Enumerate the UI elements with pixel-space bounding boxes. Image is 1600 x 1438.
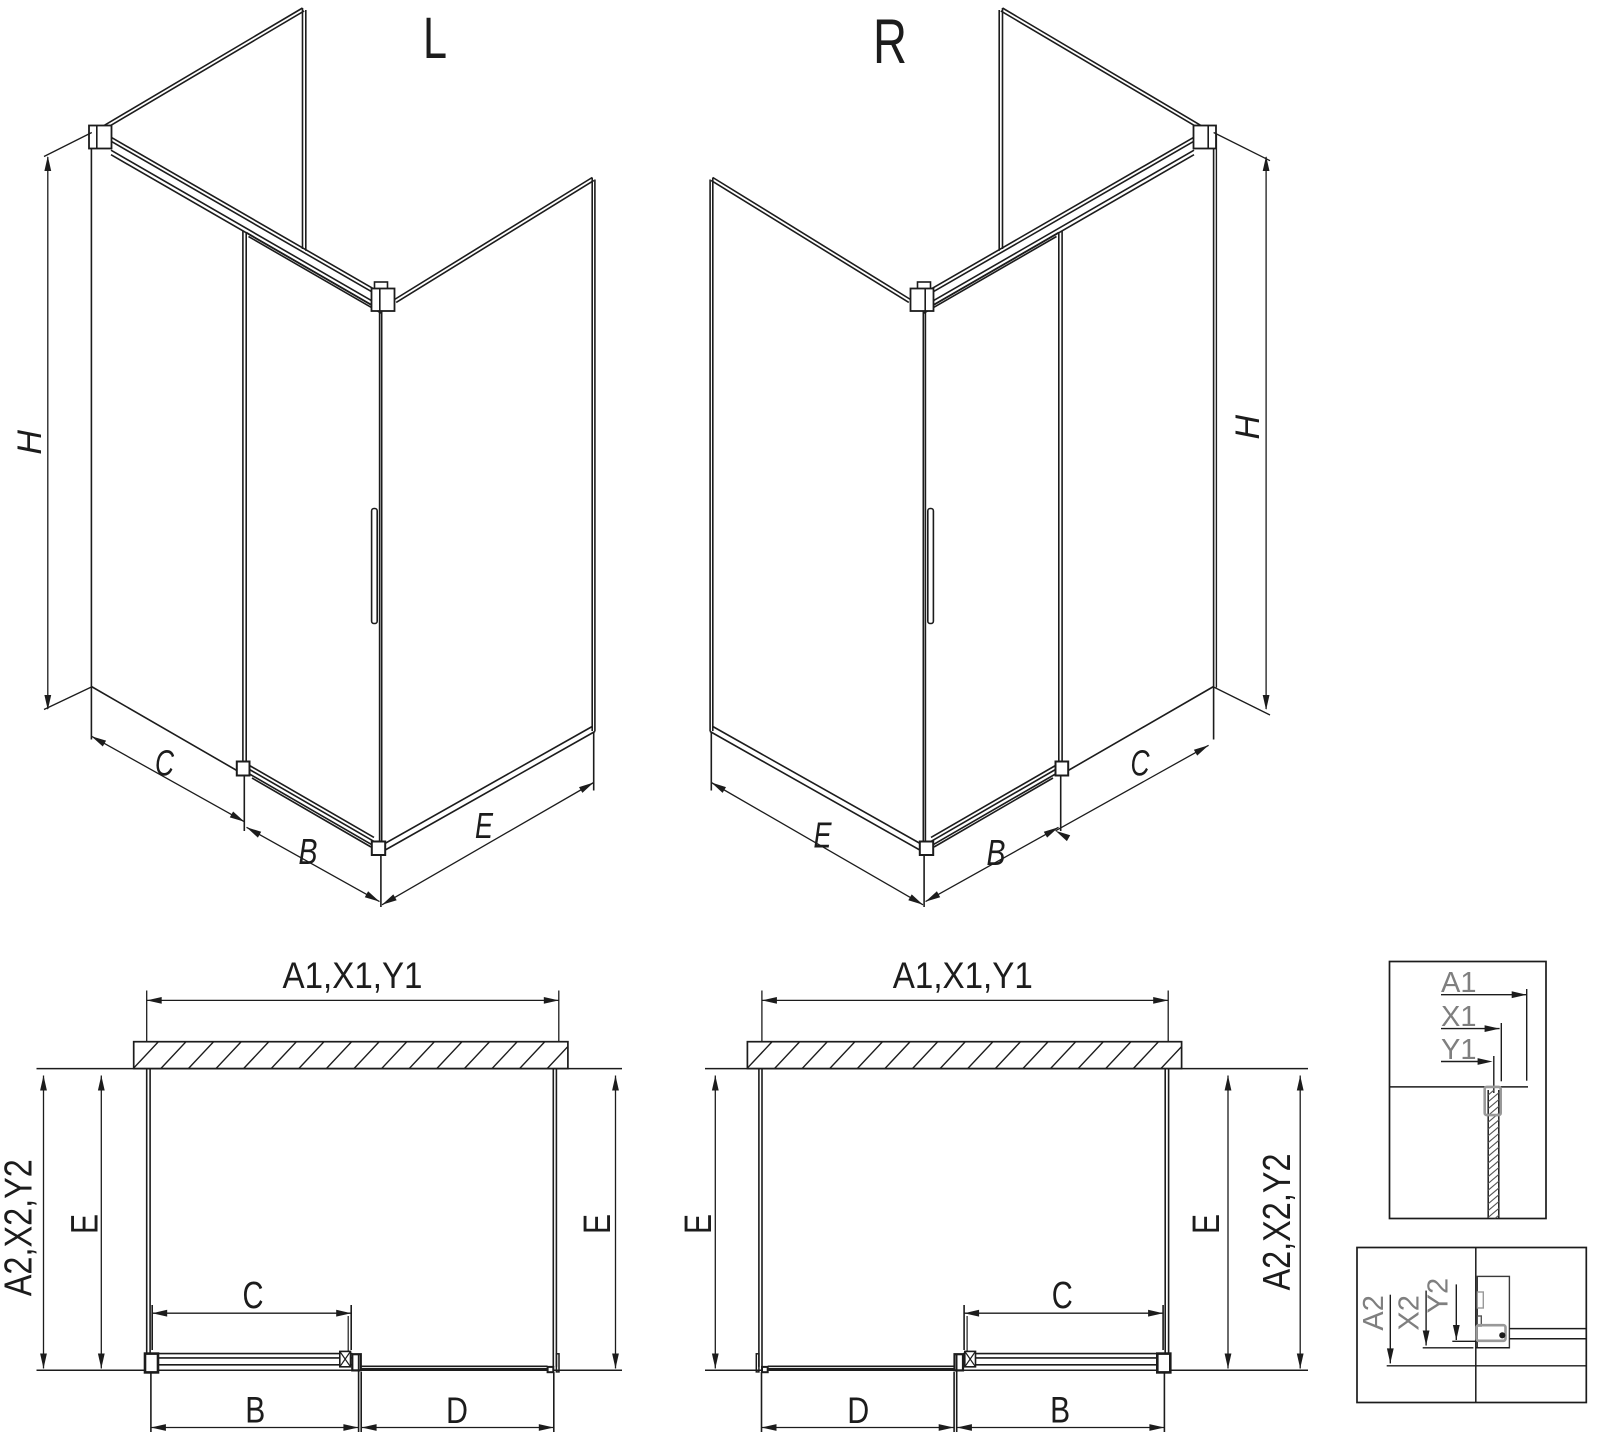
svg-text:C: C [1052,1275,1073,1317]
svg-text:X2: X2 [1393,1295,1425,1330]
svg-text:H: H [1229,414,1267,439]
svg-text:C: C [1131,743,1151,784]
svg-text:E: E [64,1214,106,1234]
svg-text:E: E [678,1214,720,1234]
svg-text:E: E [814,815,833,856]
svg-text:A2,X2,Y2: A2,X2,Y2 [1256,1154,1299,1291]
svg-text:B: B [245,1389,265,1430]
svg-text:H: H [11,430,49,455]
svg-text:D: D [446,1390,468,1431]
svg-text:A1,X1,Y1: A1,X1,Y1 [893,955,1033,996]
svg-text:A1,X1,Y1: A1,X1,Y1 [283,955,423,996]
svg-text:B: B [1050,1389,1070,1430]
svg-text:E: E [577,1214,619,1234]
svg-text:L: L [423,6,447,71]
svg-text:B: B [299,831,318,872]
svg-text:E: E [475,805,494,846]
svg-text:B: B [987,832,1006,873]
svg-text:D: D [847,1390,869,1431]
svg-text:Y2: Y2 [1423,1278,1455,1313]
svg-text:E: E [1186,1214,1228,1234]
svg-text:C: C [243,1275,264,1317]
svg-text:A2,X2,Y2: A2,X2,Y2 [0,1159,41,1296]
svg-text:C: C [155,743,175,784]
svg-text:R: R [873,7,907,77]
svg-text:A2: A2 [1358,1295,1390,1330]
